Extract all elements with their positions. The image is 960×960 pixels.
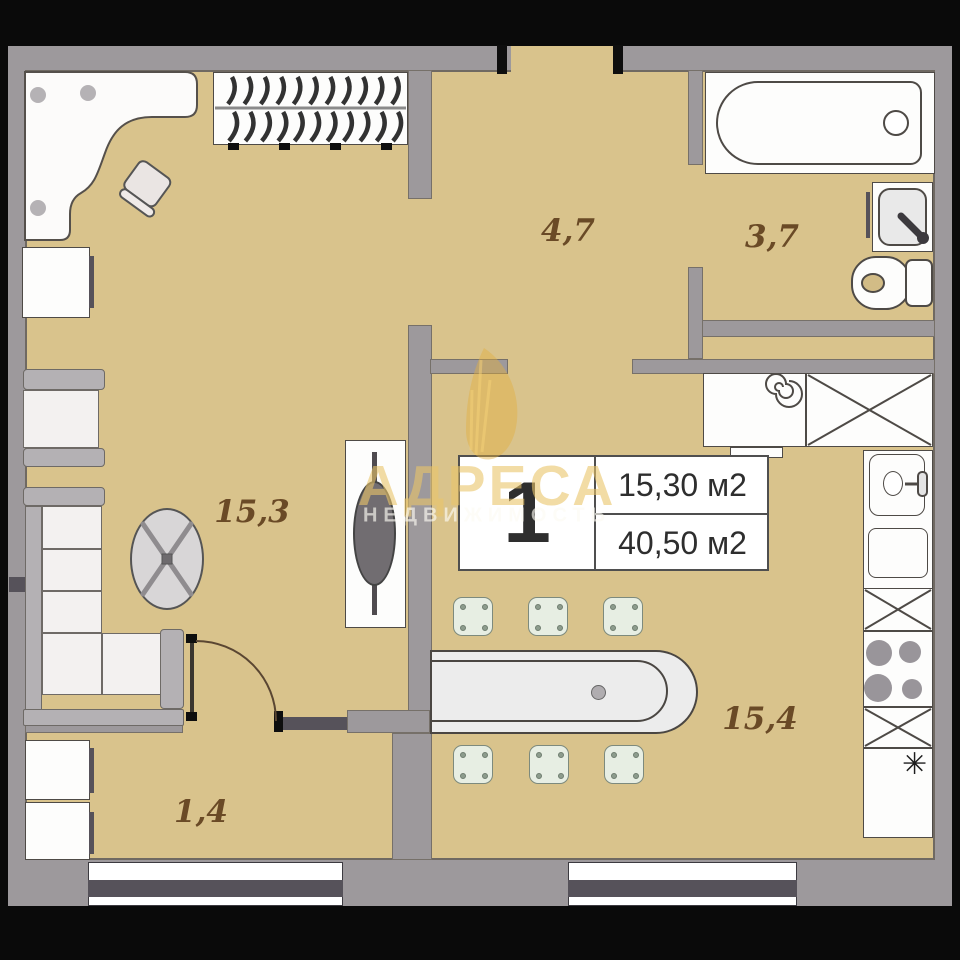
- room-label-bathroom: 3,7: [745, 219, 799, 255]
- room-label-living: 15,3: [214, 494, 290, 530]
- spiral-icon: [766, 374, 802, 407]
- bathroom-faucet-icon: [901, 216, 929, 244]
- room-label-hallway: 4,7: [541, 213, 595, 249]
- toilet: [852, 257, 932, 309]
- door-swing-arc: [196, 641, 276, 721]
- room-label-kitchen-living: 15,4: [722, 701, 798, 737]
- room-label-entry: 1,4: [174, 794, 228, 830]
- cabinet-cross-lines: [808, 375, 931, 746]
- plan-vector-overlay: [0, 0, 960, 960]
- floor-plan-image: ✳ 1 15,30 м2 40,50 м2: [0, 0, 960, 960]
- corner-desk: [25, 72, 197, 240]
- kitchen-faucet-icon: [905, 472, 927, 496]
- round-table-legs: [143, 524, 191, 594]
